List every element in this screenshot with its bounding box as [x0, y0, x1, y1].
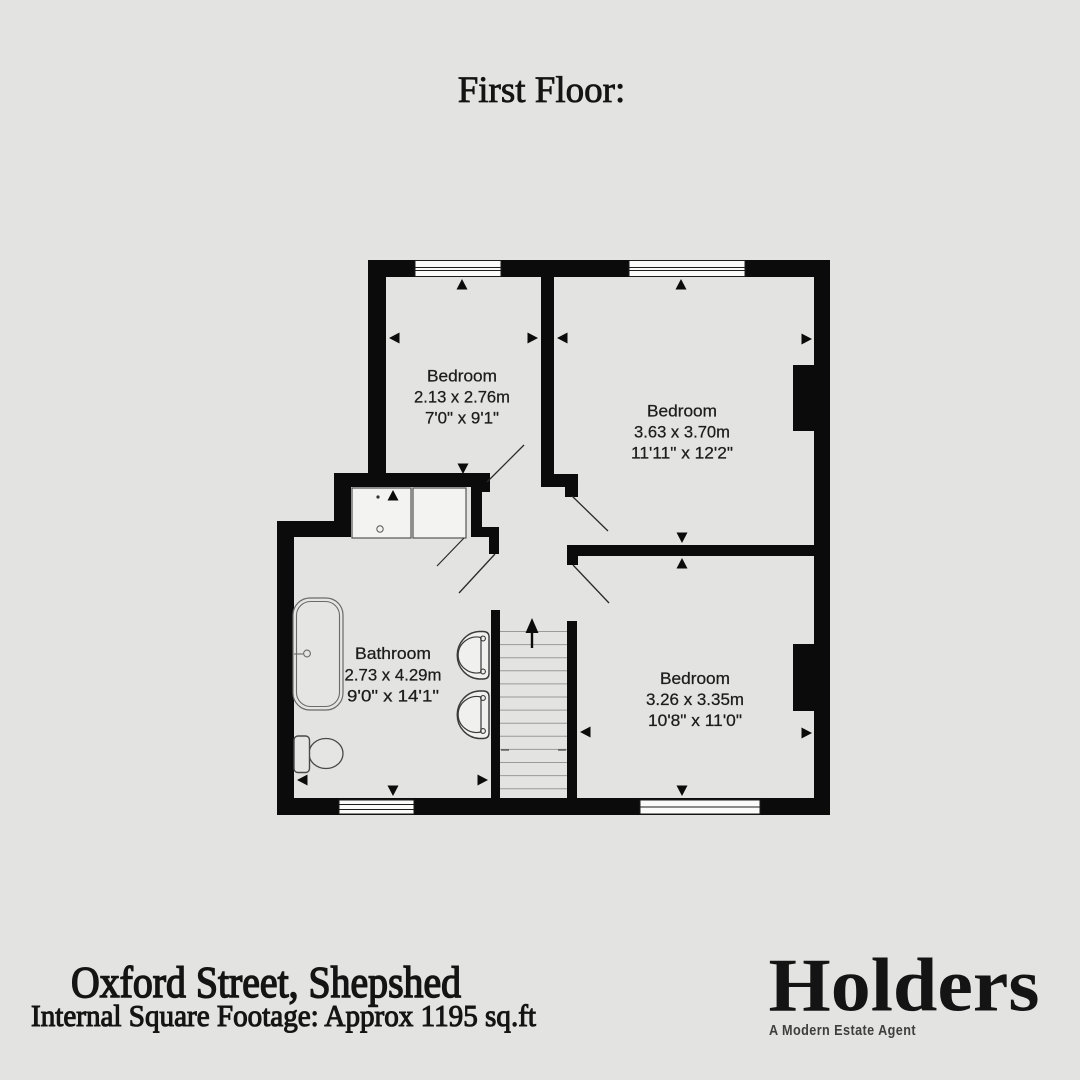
- svg-text:9'0" x 14'1": 9'0" x 14'1": [347, 687, 439, 706]
- svg-text:3.63 x 3.70m: 3.63 x 3.70m: [634, 423, 730, 442]
- svg-text:First Floor:: First Floor:: [458, 70, 626, 111]
- svg-text:Bedroom: Bedroom: [660, 669, 730, 688]
- svg-text:2.73 x 4.29m: 2.73 x 4.29m: [345, 666, 442, 685]
- svg-text:Internal Square Footage: Appro: Internal Square Footage: Approx 1195 sq.…: [31, 998, 536, 1033]
- svg-text:Bathroom: Bathroom: [355, 644, 431, 663]
- svg-text:11'11" x 12'2": 11'11" x 12'2": [631, 444, 733, 463]
- svg-text:10'8" x 11'0": 10'8" x 11'0": [648, 711, 742, 730]
- svg-text:3.26 x 3.35m: 3.26 x 3.35m: [646, 690, 744, 709]
- svg-text:Bedroom: Bedroom: [647, 402, 717, 421]
- svg-text:7'0" x 9'1": 7'0" x 9'1": [425, 409, 499, 428]
- svg-text:A Modern Estate Agent: A Modern Estate Agent: [769, 1022, 916, 1039]
- svg-text:2.13 x 2.76m: 2.13 x 2.76m: [414, 388, 510, 407]
- svg-text:Bedroom: Bedroom: [427, 367, 497, 386]
- svg-text:Holders: Holders: [769, 944, 1040, 1028]
